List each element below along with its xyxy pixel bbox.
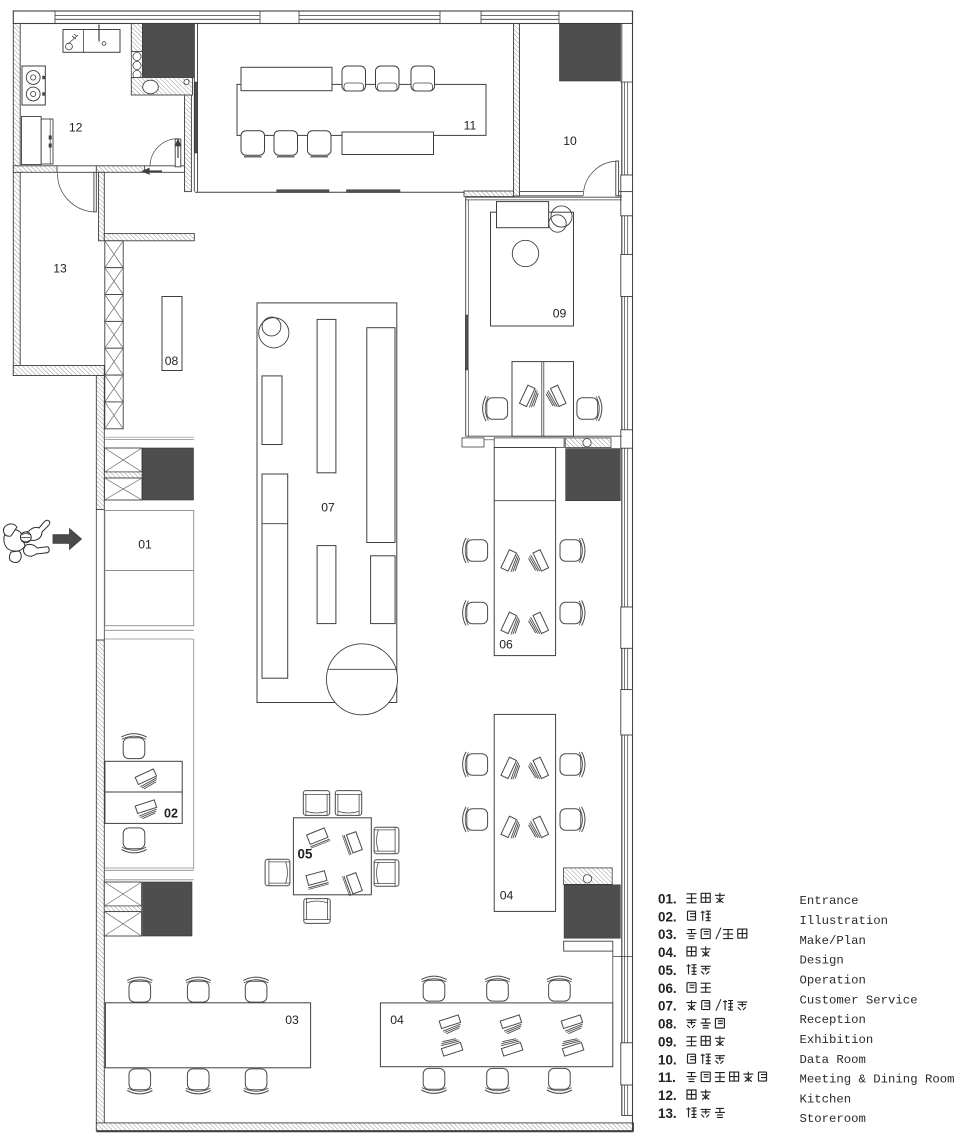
svg-text:05.: 05. <box>658 963 677 978</box>
svg-text:Storeroom: Storeroom <box>800 1112 866 1126</box>
svg-text:08: 08 <box>165 354 179 368</box>
svg-text:09: 09 <box>553 307 567 321</box>
svg-text:08.: 08. <box>658 1017 677 1032</box>
svg-text:Meeting & Dining Room: Meeting & Dining Room <box>800 1073 955 1087</box>
svg-text:13.: 13. <box>658 1106 677 1121</box>
svg-text:10: 10 <box>563 134 577 148</box>
svg-text:Data Room: Data Room <box>800 1053 866 1067</box>
svg-text:11: 11 <box>464 119 477 133</box>
svg-text:01.: 01. <box>658 891 677 906</box>
svg-text:02.: 02. <box>658 909 677 924</box>
svg-text:03: 03 <box>285 1013 299 1027</box>
svg-text:04: 04 <box>390 1013 404 1027</box>
svg-text:01: 01 <box>138 538 152 552</box>
svg-text:04: 04 <box>500 889 514 903</box>
svg-text:Entrance: Entrance <box>800 894 859 908</box>
svg-text:09.: 09. <box>658 1034 677 1049</box>
svg-text:05: 05 <box>298 847 313 862</box>
svg-text:11.: 11. <box>658 1070 676 1085</box>
svg-text:06: 06 <box>499 638 513 652</box>
svg-text:02: 02 <box>164 807 178 821</box>
svg-text:03.: 03. <box>658 927 677 942</box>
svg-text:12.: 12. <box>658 1088 677 1103</box>
svg-text:Reception: Reception <box>800 1013 866 1027</box>
svg-text:07: 07 <box>321 501 335 515</box>
svg-text:Kitchen: Kitchen <box>800 1092 852 1106</box>
svg-text:13: 13 <box>53 262 67 276</box>
svg-text:Exhibition: Exhibition <box>800 1033 874 1047</box>
svg-text:04.: 04. <box>658 945 677 960</box>
svg-text:Operation: Operation <box>800 974 866 988</box>
svg-text:10.: 10. <box>658 1052 677 1067</box>
svg-text:Customer Service: Customer Service <box>800 993 918 1007</box>
svg-text:Illustration: Illustration <box>800 914 889 928</box>
svg-text:Make/Plan: Make/Plan <box>800 934 866 948</box>
svg-text:07.: 07. <box>658 999 677 1014</box>
svg-text:Design: Design <box>800 954 844 968</box>
svg-text:06.: 06. <box>658 981 677 996</box>
svg-text:12: 12 <box>69 121 83 135</box>
